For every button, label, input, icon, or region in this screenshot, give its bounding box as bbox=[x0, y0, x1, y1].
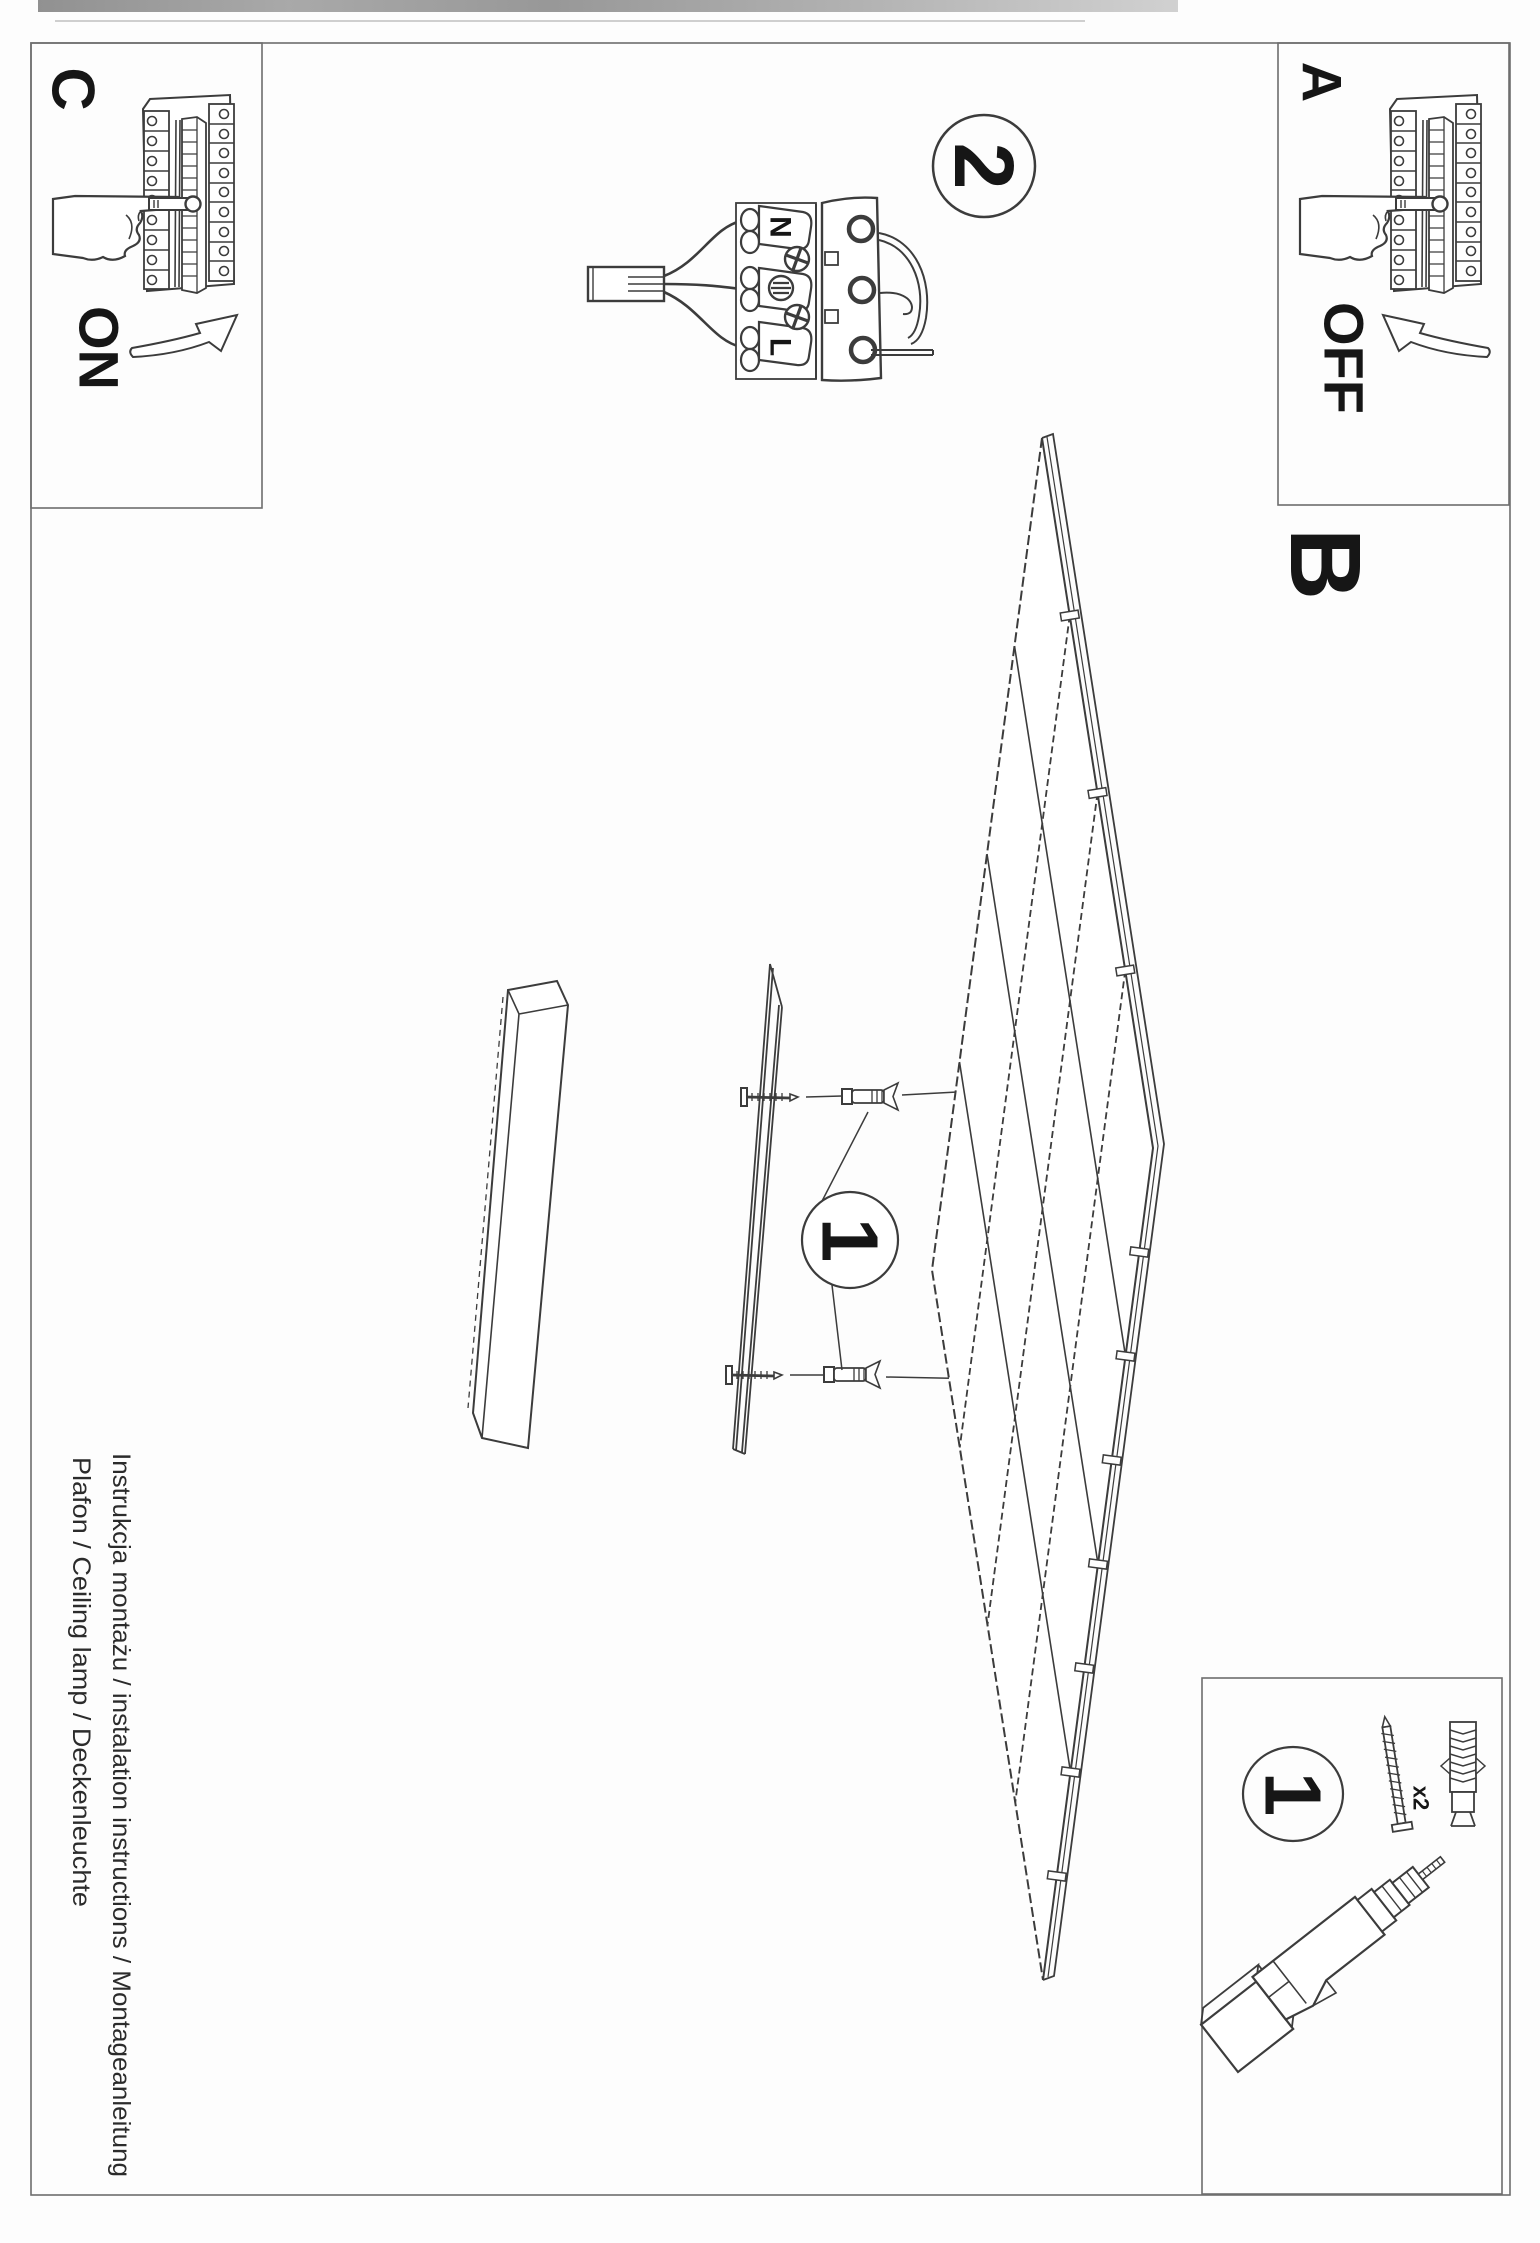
arrow-on-icon bbox=[130, 315, 237, 357]
switch-off-label: OFF bbox=[1313, 302, 1376, 414]
manual-drawing-canvas: C ON A OFF B 2 bbox=[0, 0, 1540, 2243]
step-a-illustration: A OFF bbox=[1291, 62, 1490, 414]
footer-product-line: Plafon / Ceiling lamp / Deckenleuchte bbox=[67, 1457, 95, 1907]
plate-holes bbox=[849, 217, 875, 362]
wires bbox=[664, 221, 741, 347]
step-1-badge: 1 bbox=[806, 1218, 895, 1263]
screw-quantity-label: x2 bbox=[1409, 1786, 1434, 1810]
switch-on-label: ON bbox=[68, 306, 131, 390]
arrow-off-icon bbox=[1383, 315, 1490, 357]
step-2-wiring-illustration: 2 bbox=[588, 115, 1035, 381]
wall-plug-icon bbox=[1441, 1722, 1485, 1826]
step-a-label: A bbox=[1291, 62, 1354, 102]
supply-cable bbox=[588, 267, 664, 301]
step-c-illustration: C ON bbox=[40, 67, 238, 390]
hardware-box-contents: 1 x2 bbox=[1194, 1715, 1485, 2072]
footer-title-line: Instrukcja montażu / instalation instruc… bbox=[107, 1453, 135, 2177]
drill-icon bbox=[1194, 1835, 1468, 2072]
hardware-badge: 1 bbox=[1249, 1772, 1338, 1817]
live-label: L bbox=[764, 338, 797, 356]
lamp-profile-bar bbox=[468, 981, 568, 1448]
step-1-exploded-view: 1 bbox=[468, 434, 1164, 1980]
step-c-label: C bbox=[40, 67, 107, 110]
step-2-badge: 2 bbox=[937, 143, 1031, 190]
instruction-sheet-page: C ON A OFF B 2 bbox=[0, 0, 1540, 2243]
neutral-label: N bbox=[764, 216, 797, 238]
screw-icon bbox=[1375, 1715, 1413, 1832]
scan-artifact-line bbox=[55, 20, 1085, 22]
scan-artifact-band bbox=[38, 0, 1178, 12]
mounting-strip bbox=[733, 964, 782, 1454]
lamp-grid-panel bbox=[932, 434, 1164, 1980]
step-b-label: B bbox=[1269, 528, 1381, 600]
